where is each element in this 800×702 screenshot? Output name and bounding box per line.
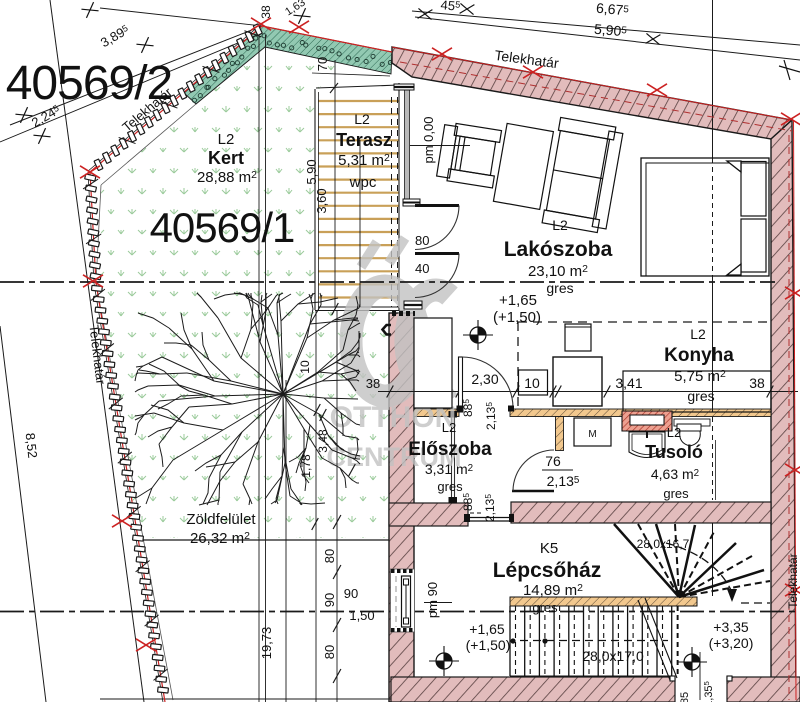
svg-text:(+1,50): (+1,50): [493, 309, 541, 326]
svg-text:90: 90: [344, 586, 358, 601]
svg-text:3,48: 3,48: [316, 429, 330, 453]
svg-text:14,89 m2: 14,89 m2: [523, 582, 583, 599]
svg-text:pm 90: pm 90: [425, 582, 440, 618]
svg-text:80: 80: [415, 233, 429, 248]
svg-text:Tusoló: Tusoló: [645, 442, 703, 462]
svg-text:Terasz: Terasz: [336, 130, 392, 150]
svg-text:19,73: 19,73: [259, 627, 274, 660]
svg-text:Lakószoba: Lakószoba: [504, 238, 613, 261]
svg-text:L2: L2: [690, 326, 706, 342]
svg-text:L2: L2: [354, 111, 370, 127]
svg-text:26,32 m2: 26,32 m2: [190, 530, 250, 547]
svg-text:4,63 m2: 4,63 m2: [651, 466, 699, 482]
svg-text:38: 38: [749, 375, 765, 391]
svg-text:5,90: 5,90: [304, 159, 319, 184]
svg-text:wpc: wpc: [349, 174, 377, 191]
svg-text:Telekhatár: Telekhatár: [786, 553, 800, 608]
svg-text:5,31 m2: 5,31 m2: [338, 152, 390, 169]
svg-text:28,88 m2: 28,88 m2: [197, 169, 257, 186]
svg-text:Zöldfelület: Zöldfelület: [186, 511, 256, 528]
svg-text:76: 76: [545, 453, 561, 469]
svg-text:gres: gres: [663, 486, 689, 501]
svg-text:Előszoba: Előszoba: [408, 439, 492, 460]
svg-text:38: 38: [259, 5, 273, 19]
svg-text:85: 85: [679, 692, 691, 702]
svg-text:(+3,20): (+3,20): [709, 635, 754, 651]
svg-text:+1,65: +1,65: [499, 292, 537, 309]
svg-text:+3,35: +3,35: [713, 619, 749, 635]
svg-text:Konyha: Konyha: [664, 345, 734, 366]
svg-text:gres: gres: [546, 280, 573, 296]
svg-text:3,41: 3,41: [615, 375, 642, 391]
svg-text:10: 10: [298, 360, 312, 374]
svg-text:90: 90: [322, 593, 337, 607]
svg-text:40: 40: [415, 261, 429, 276]
svg-text:1,78: 1,78: [299, 454, 313, 478]
svg-text:28,0x16,7: 28,0x16,7: [637, 537, 690, 551]
svg-text:80: 80: [322, 645, 337, 659]
svg-text:5,75 m2: 5,75 m2: [674, 368, 726, 385]
svg-text:80: 80: [322, 549, 337, 563]
svg-text:1,50: 1,50: [349, 608, 374, 623]
svg-text:2,30: 2,30: [471, 371, 498, 387]
svg-text:gres: gres: [437, 479, 463, 494]
svg-text:L2: L2: [667, 425, 681, 440]
svg-text:L2: L2: [552, 217, 568, 233]
svg-text:gres: gres: [532, 600, 558, 615]
svg-text:23,10 m2: 23,10 m2: [528, 263, 588, 280]
svg-text:3,60: 3,60: [314, 188, 329, 213]
svg-text:8,52: 8,52: [23, 432, 41, 459]
svg-text:3,31 m2: 3,31 m2: [425, 461, 473, 477]
svg-text:K5: K5: [540, 540, 558, 557]
svg-text:10: 10: [524, 375, 540, 391]
svg-text:L2: L2: [218, 131, 235, 148]
svg-text:40569/1: 40569/1: [150, 204, 295, 251]
svg-text:gres: gres: [687, 388, 714, 404]
svg-text:38: 38: [366, 376, 380, 391]
svg-text:70: 70: [315, 57, 330, 71]
svg-text:+1,65: +1,65: [469, 621, 505, 637]
svg-text:Lépcsőház: Lépcsőház: [493, 559, 602, 582]
svg-text:L2: L2: [442, 420, 456, 435]
svg-text:pm 0,00: pm 0,00: [421, 117, 436, 164]
svg-text:M: M: [588, 429, 596, 440]
svg-text:Kert: Kert: [208, 148, 244, 168]
svg-text:(+1,50): (+1,50): [466, 637, 511, 653]
svg-text:28,0x17,0: 28,0x17,0: [582, 648, 644, 664]
